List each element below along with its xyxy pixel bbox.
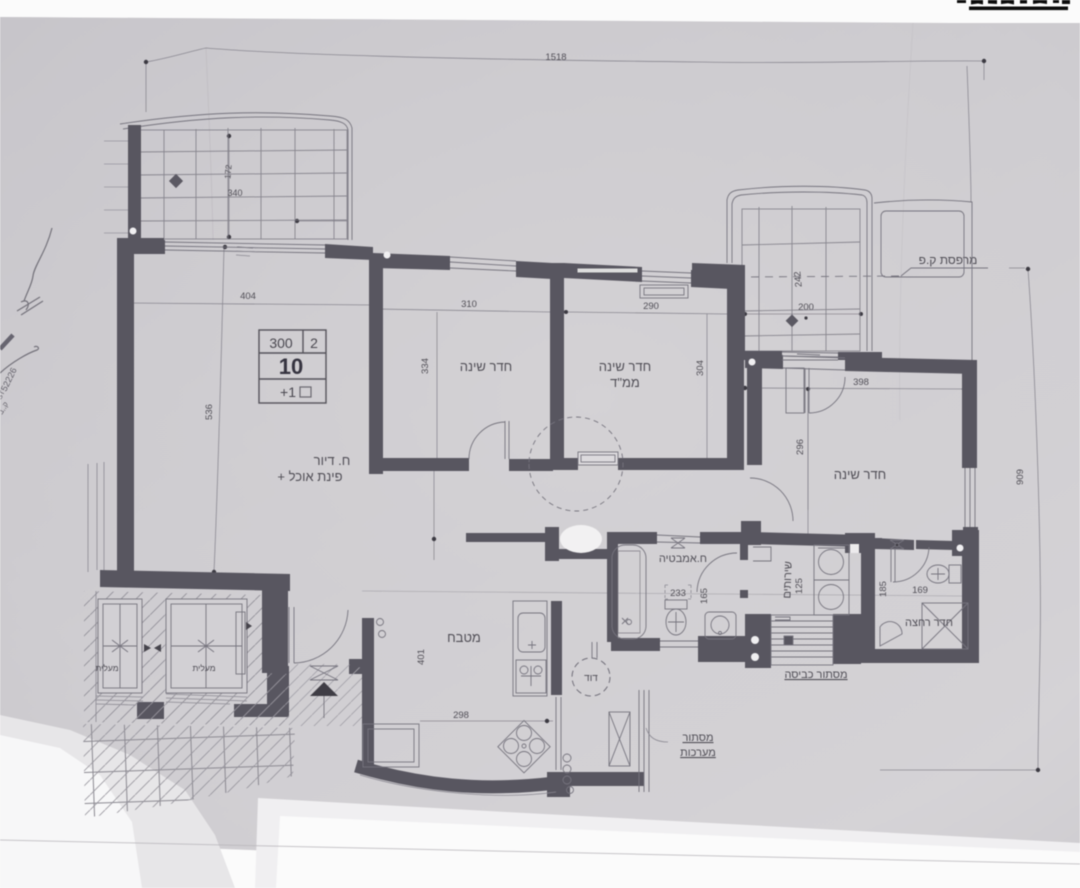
svg-text:310: 310 [461,299,477,310]
svg-text:536: 536 [204,404,215,420]
svg-text:מעלית: מעלית [95,663,118,673]
svg-text:165: 165 [699,588,710,604]
svg-text:מסתור: מסתור [683,732,714,744]
svg-text:404: 404 [240,291,256,302]
svg-text:חדר שינה: חדר שינה [460,359,512,374]
svg-text:חדר שינה: חדר שינה [834,467,886,482]
svg-text:מסתור כביסה: מסתור כביסה [784,669,847,681]
svg-text:2: 2 [310,335,318,351]
svg-text:233: 233 [670,588,686,599]
svg-text:ממ"ד: ממ"ד [610,375,640,390]
svg-text:מרפסת ק.פ: מרפסת ק.פ [919,253,978,267]
svg-text:300: 300 [269,335,293,351]
svg-text:401: 401 [416,649,427,665]
svg-text:296: 296 [795,439,806,455]
svg-text:מטבח: מטבח [447,630,481,645]
svg-text:מעלית: מעלית [192,663,215,673]
svg-text:שירותים: שירותים [781,561,794,599]
svg-text:185: 185 [878,581,889,597]
svg-text:340: 340 [227,188,242,198]
svg-text:1518: 1518 [545,52,566,63]
svg-text:169: 169 [912,585,928,596]
svg-text:200: 200 [798,302,814,313]
svg-text:298: 298 [453,710,469,721]
svg-text:290: 290 [643,301,659,312]
svg-text:909: 909 [1015,469,1026,485]
svg-text:+1: +1 [280,384,296,400]
svg-text:398: 398 [853,377,869,388]
svg-text:125: 125 [794,578,805,594]
svg-text:ח. דיור: ח. דיור [314,453,351,468]
svg-text:ח.אמבטיה: ח.אמבטיה [659,553,707,565]
svg-text:חדר שינה: חדר שינה [599,359,651,374]
svg-text:334: 334 [420,358,431,374]
svg-text:חדר רחצה: חדר רחצה [905,617,953,629]
svg-text:242: 242 [792,271,804,288]
svg-text:304: 304 [695,360,706,376]
svg-text:מערכות: מערכות [680,747,716,759]
svg-text:10: 10 [279,354,303,379]
svg-text:דוד: דוד [584,673,598,684]
svg-text:+ פינת אוכל: + פינת אוכל [277,469,342,484]
